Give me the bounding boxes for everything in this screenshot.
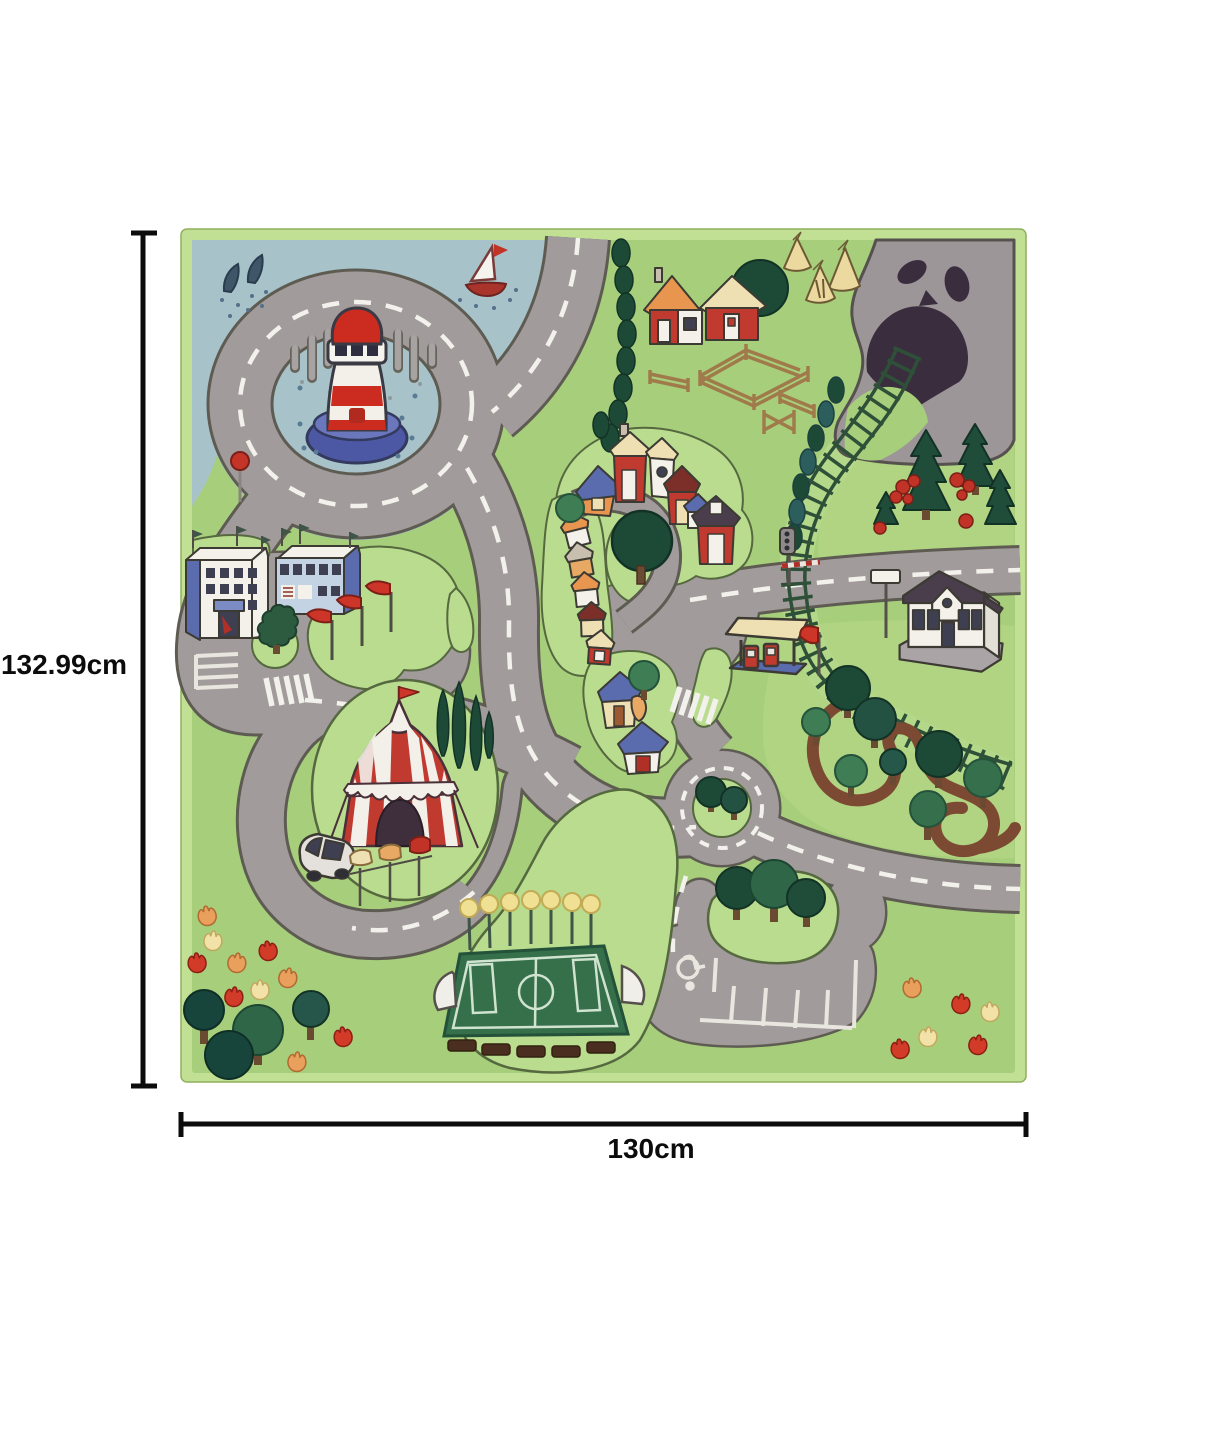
svg-text:130cm: 130cm [607, 1133, 694, 1164]
svg-text:132.99cm: 132.99cm [1, 649, 127, 680]
